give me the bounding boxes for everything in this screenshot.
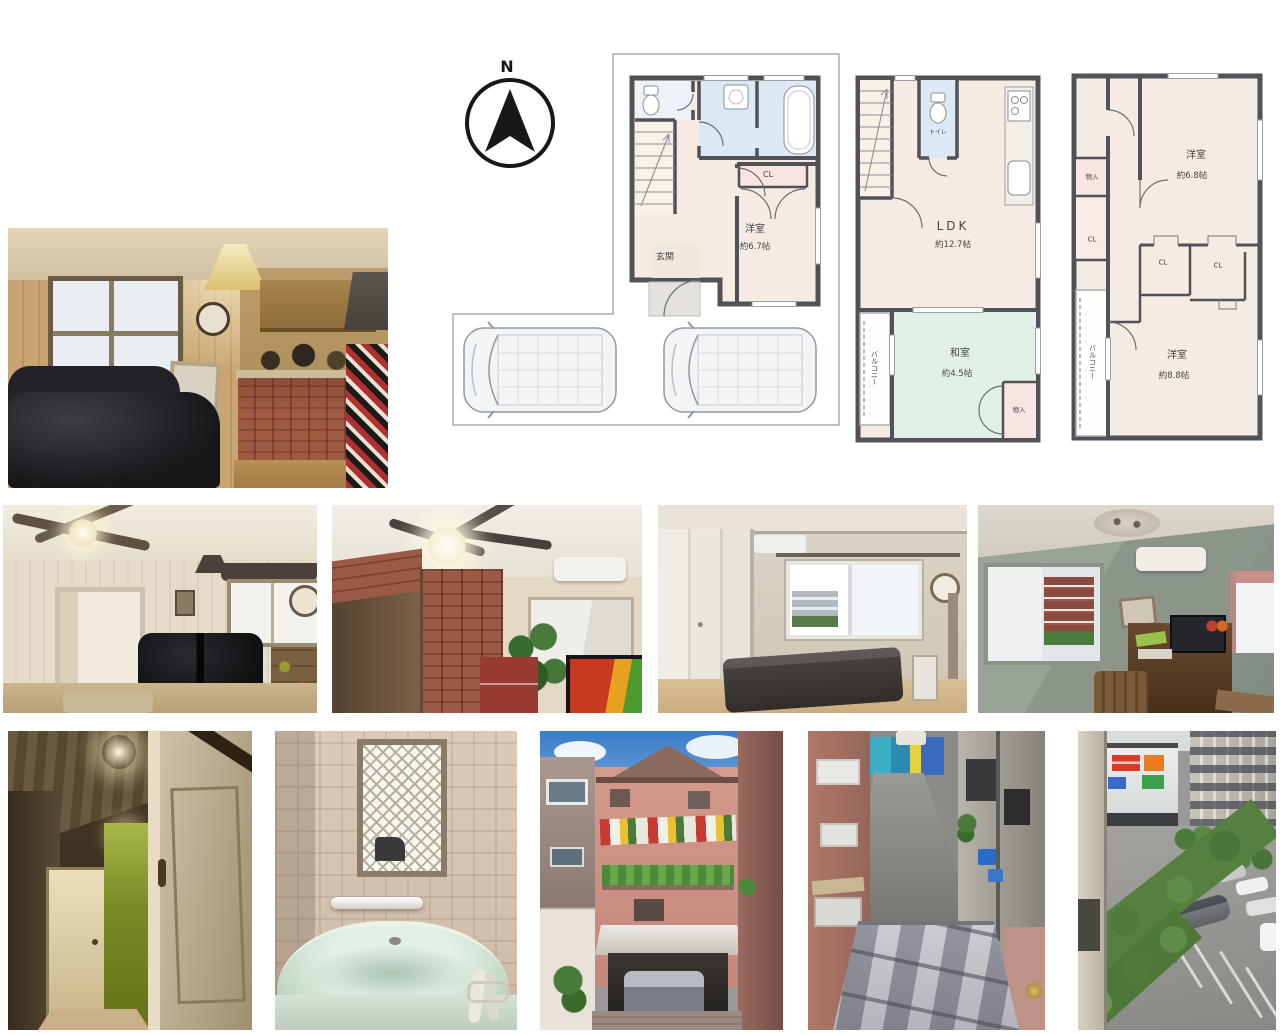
sign-red xyxy=(1112,755,1140,771)
keyboard xyxy=(1138,649,1172,659)
end-door xyxy=(46,867,110,1023)
photo-exterior-front xyxy=(540,731,783,1030)
ac-unit xyxy=(1136,547,1206,571)
ac-unit xyxy=(554,557,626,581)
sign-blue xyxy=(1108,777,1126,789)
floorplan-3f: 物入 CL 洋室 約6.8帖 CL CL バルコニー 洋室 約8.8帖 xyxy=(1068,70,1264,445)
photo-living-fan xyxy=(3,505,317,713)
right-window xyxy=(1004,789,1030,825)
window-building-view xyxy=(1044,577,1094,645)
f3-closet-mid-label: CL xyxy=(1159,260,1168,267)
photo-desk-room xyxy=(978,505,1274,713)
door-knob xyxy=(1026,983,1042,999)
heater xyxy=(912,655,938,701)
f1-room-name: 洋室 xyxy=(745,225,765,235)
tub-water-shadow xyxy=(309,945,475,1001)
car-right xyxy=(664,322,816,418)
toilet-room xyxy=(635,81,691,119)
f1-entrance-label: 玄関 xyxy=(656,254,674,263)
floorplan-2f: トイレ LDK 約12.7帖 バルコニー 和室 約4.5帖 物入 xyxy=(853,73,1045,447)
wand-holder xyxy=(467,981,509,1003)
wall-fixture xyxy=(1078,899,1100,951)
photo-parking-lot xyxy=(1078,731,1276,1030)
balcony-window xyxy=(1106,338,1111,380)
wall-clock xyxy=(196,302,230,336)
cloud xyxy=(686,735,746,759)
picture-frame xyxy=(175,590,195,616)
balcony-rail xyxy=(602,885,734,890)
drain-pipe xyxy=(996,731,1000,941)
hallway-dark xyxy=(332,585,420,713)
floorplan-3f-drawing xyxy=(1068,70,1264,445)
floor xyxy=(3,683,317,713)
eave xyxy=(596,777,738,783)
property-listing-collage: N xyxy=(0,0,1280,1035)
f2-washitsu-size: 約4.5帖 xyxy=(942,370,973,379)
car-left xyxy=(464,322,616,418)
fruit xyxy=(1204,619,1230,633)
low-table xyxy=(63,691,153,713)
f2-ldk-name: LDK xyxy=(937,220,970,232)
truck xyxy=(896,731,926,745)
sofa xyxy=(8,392,220,488)
f3-room1-name: 洋室 xyxy=(1186,151,1206,161)
curtain xyxy=(346,344,388,488)
f3-closet-right-label: CL xyxy=(1214,263,1223,270)
ceiling-light xyxy=(1094,509,1160,537)
wall-clock xyxy=(289,585,317,617)
door-panel xyxy=(170,786,245,1004)
kitchen xyxy=(1005,87,1033,205)
photo-alley-above xyxy=(808,731,1045,1030)
left-window xyxy=(814,897,862,927)
floorplan-1f: CL 洋室 約6.7帖 玄関 xyxy=(452,48,842,426)
plants xyxy=(956,813,978,843)
f1-room-size: 約6.7帖 xyxy=(740,243,771,252)
carport-roof xyxy=(595,925,743,955)
porch xyxy=(649,282,700,316)
f3-room1-size: 約6.8帖 xyxy=(1177,172,1208,181)
floorplan-2f-drawing xyxy=(853,73,1045,447)
f3-storage-label: 物入 xyxy=(1086,174,1099,181)
laundry xyxy=(600,815,737,846)
f3-balcony-label: バルコニー xyxy=(1089,345,1096,380)
tub-faucet xyxy=(389,937,401,945)
f2-washitsu-name: 和室 xyxy=(950,349,970,359)
car-edge xyxy=(1260,923,1276,951)
right-balcony-plants xyxy=(738,877,760,897)
carport-roof xyxy=(832,921,1020,1030)
left-window xyxy=(550,847,584,867)
left-window xyxy=(820,823,858,847)
photo-bathroom xyxy=(275,731,517,1030)
right-window xyxy=(966,759,996,801)
f3-room2-name: 洋室 xyxy=(1167,351,1187,361)
curtain-rod xyxy=(776,553,960,557)
small-window xyxy=(610,789,630,807)
ceiling-light xyxy=(102,735,136,769)
window-building-view xyxy=(792,591,838,627)
blue-bins xyxy=(988,869,1003,882)
grab-bar xyxy=(331,897,423,909)
small-window xyxy=(688,791,710,809)
potted-plant xyxy=(550,963,590,1025)
f2-storage-label: 物入 xyxy=(1013,407,1026,414)
mid-window xyxy=(634,899,664,921)
closet-left-area xyxy=(1076,196,1108,260)
window-sill-item xyxy=(375,837,405,861)
f2-balcony-label: バルコニー xyxy=(871,351,878,386)
foreground-wall xyxy=(1078,731,1107,1030)
floor xyxy=(38,1009,150,1030)
blue-bins xyxy=(978,849,996,865)
ac-unit xyxy=(754,535,806,553)
sign-green xyxy=(1142,775,1164,789)
photo-living-kitchen xyxy=(8,228,388,488)
f3-room2-size: 約8.8帖 xyxy=(1159,372,1190,381)
floorplan-1f-drawing xyxy=(452,48,842,426)
sign-orange xyxy=(1144,755,1164,771)
red-cabinet xyxy=(480,657,538,713)
chair xyxy=(1094,671,1148,713)
photo-hallway-green xyxy=(8,731,252,1030)
toilet-fixture xyxy=(930,93,946,123)
balcony-plants xyxy=(602,865,734,885)
fan-light xyxy=(69,519,97,547)
tv xyxy=(566,655,642,713)
right-window xyxy=(1230,571,1274,653)
f3-closet-left-label: CL xyxy=(1088,237,1097,244)
balcony-window xyxy=(890,335,895,375)
f2-ldk-size: 約12.7帖 xyxy=(935,241,971,250)
photo-brick-room xyxy=(332,505,642,713)
driveway xyxy=(592,1011,742,1030)
fan-light xyxy=(428,527,466,565)
f2-toilet-label: トイレ xyxy=(929,130,947,136)
photo-bedroom-mattress xyxy=(658,505,967,713)
door-handle xyxy=(158,859,166,887)
f1-closet-label: CL xyxy=(763,171,773,179)
left-window xyxy=(816,759,860,785)
left-window xyxy=(546,779,588,805)
door-knob xyxy=(92,939,98,945)
sliding-door xyxy=(913,308,983,313)
